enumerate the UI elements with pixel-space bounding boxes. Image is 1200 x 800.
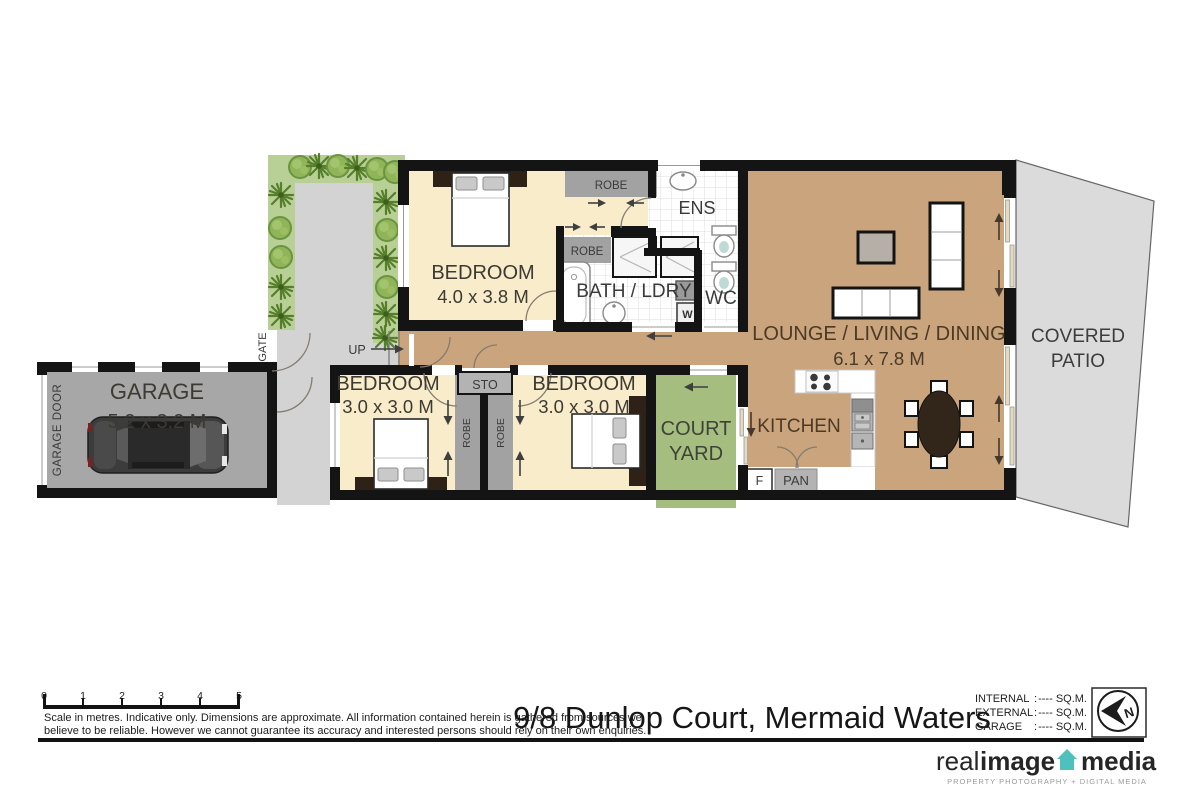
bedroom3-dims: 3.0 x 3.0 M (538, 396, 630, 417)
footer-divider (38, 738, 1144, 742)
up-label: UP (348, 343, 365, 357)
cooktop-icon (806, 371, 838, 392)
patio-label-2: PATIO (1051, 351, 1105, 372)
legend-sep: : (1034, 693, 1037, 705)
lounge-dims: 6.1 x 7.8 M (833, 348, 925, 369)
legend-label: INTERNAL (975, 693, 1029, 705)
page-title: 9/8 Dunlop Court, Mermaid Waters (513, 700, 991, 735)
bedroom3-label: BEDROOM (532, 373, 635, 395)
legend-sep: : (1034, 721, 1037, 733)
ens-label: ENS (678, 198, 715, 218)
brand-logo: real image media PROPERTY PHOTOGRAPHY + … (936, 746, 1157, 786)
patio-label-1: COVERED (1031, 326, 1125, 347)
north-compass-icon: N (1092, 688, 1146, 737)
legend-value: ---- SQ.M. (1038, 721, 1087, 733)
garage-label: GARAGE (110, 379, 204, 404)
area-legend: INTERNAL : ---- SQ.M. EXTERNAL : ---- SQ… (975, 693, 1087, 733)
legend-label: GARAGE (975, 721, 1022, 733)
lounge-label: LOUNGE / LIVING / DINING (752, 323, 1005, 345)
logo-tagline: PROPERTY PHOTOGRAPHY + DIGITAL MEDIA (947, 777, 1147, 786)
sink-icon (670, 172, 696, 190)
courtyard-label-1: COURT (661, 418, 732, 440)
bath-label: BATH / LDRY (576, 281, 692, 302)
robe-label: ROBE (461, 418, 473, 448)
sofa-icon (833, 288, 919, 318)
scale-bar: 0 1 2 3 4 5 (41, 690, 242, 709)
logo-word-image: image (980, 746, 1055, 776)
logo-word-real: real (936, 746, 979, 776)
sink-icon (852, 399, 873, 449)
fridge-label: F (756, 474, 764, 488)
gate-label: GATE (257, 332, 269, 361)
bedroom1-dims: 4.0 x 3.8 M (437, 286, 529, 307)
garage-door-label: GARAGE DOOR (52, 384, 64, 476)
toilet-icon (712, 226, 736, 257)
legend-value: ---- SQ.M. (1038, 693, 1087, 705)
robe-label: ROBE (595, 180, 628, 192)
floorplan-page: GARAGE 5.2 x 3.2 M GARAGE DOOR GATE UP B… (0, 0, 1200, 800)
washer-label: W (682, 309, 693, 321)
garage-dims: 5.2 x 3.2 M (108, 411, 207, 433)
wc-label: WC (705, 288, 737, 309)
pantry-label: PAN (783, 473, 809, 488)
robe-label: ROBE (495, 418, 507, 448)
courtyard-label-2: YARD (669, 443, 723, 465)
shower-icon (661, 237, 698, 277)
coffee-table-icon (858, 232, 894, 263)
legend-label: EXTERNAL (975, 707, 1033, 719)
sto-label: STO (472, 378, 498, 392)
cabinet-icon (930, 203, 963, 289)
logo-word-media: media (1081, 746, 1157, 776)
sink-icon (603, 302, 625, 324)
house-icon (1057, 749, 1077, 770)
robe-label: ROBE (571, 246, 604, 258)
legend-sep: : (1034, 707, 1037, 719)
kitchen-label: KITCHEN (757, 416, 840, 437)
bedroom2-dims: 3.0 x 3.0 M (342, 396, 434, 417)
legend-value: ---- SQ.M. (1038, 707, 1087, 719)
bedroom2-label: BEDROOM (336, 373, 439, 395)
bedroom1-label: BEDROOM (431, 262, 534, 284)
floorplan-canvas: GARAGE 5.2 x 3.2 M GARAGE DOOR GATE UP B… (0, 0, 1200, 800)
